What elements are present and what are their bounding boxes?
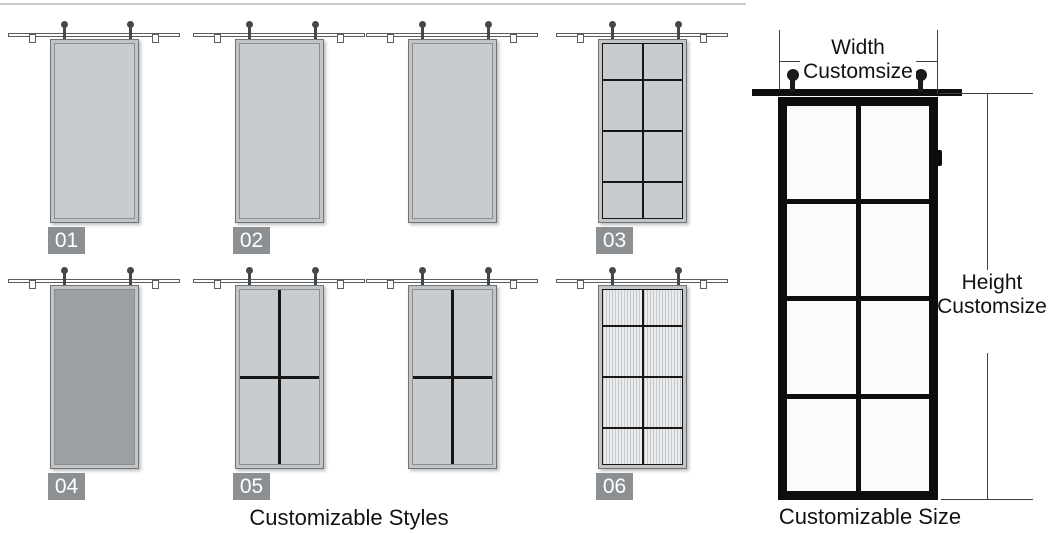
- glass-pane: [603, 327, 642, 376]
- glass-pane: [240, 379, 278, 465]
- glass-pane: [454, 290, 492, 376]
- sliding-rail: [193, 279, 365, 283]
- rail-end-cap: [700, 280, 707, 289]
- height-label-line1: Height: [928, 271, 1056, 295]
- sliding-rail: [193, 33, 365, 37]
- rail-end-cap: [387, 280, 394, 289]
- glass-pane: [454, 379, 492, 465]
- size-demo-rail: [752, 89, 962, 96]
- roller-hanger-icon: [915, 69, 927, 81]
- door-hanger-icon: [248, 271, 251, 286]
- door-style-unit-02b: [366, 30, 538, 262]
- sliding-rail: [556, 33, 728, 37]
- door-panel-04: [50, 285, 139, 469]
- sliding-rail: [556, 279, 728, 283]
- rail-end-cap: [214, 280, 221, 289]
- glass-pane: [413, 379, 451, 465]
- glass-pane: [787, 399, 856, 492]
- width-extension-line-right: [937, 30, 938, 94]
- styles-caption: Customizable Styles: [238, 505, 460, 531]
- door-face: [412, 289, 493, 465]
- height-dimension-line-lower: [987, 353, 988, 500]
- door-face: [602, 289, 683, 465]
- door-style-unit-05: 05: [193, 276, 365, 508]
- glass-pane: [603, 290, 642, 325]
- glass-pane: [644, 81, 683, 130]
- rail-end-cap: [700, 34, 707, 43]
- glass-pane: [603, 81, 642, 130]
- door-style-unit-01: 01: [8, 30, 180, 262]
- glass-pane: [787, 204, 856, 297]
- door-hanger-icon: [314, 271, 317, 286]
- sliding-rail: [8, 33, 180, 37]
- width-dimension-label: Width Customsize: [800, 36, 916, 84]
- door-hanger-icon: [677, 25, 680, 40]
- rail-end-cap: [577, 34, 584, 43]
- door-hanger-icon: [421, 271, 424, 286]
- door-hanger-icon: [63, 271, 66, 286]
- style-number-badge: 02: [233, 227, 270, 254]
- height-dimension-line-upper: [987, 94, 988, 270]
- door-panel-05: [235, 285, 324, 469]
- glass-pane: [861, 399, 930, 492]
- glass-pane: [603, 378, 642, 427]
- glass-pane: [281, 379, 319, 465]
- door-style-unit-05b: [366, 276, 538, 508]
- door-panel-06: [598, 285, 687, 469]
- door-hanger-icon: [487, 25, 490, 40]
- style-number-badge: 01: [48, 227, 85, 254]
- rail-end-cap: [152, 34, 159, 43]
- glass-pane: [644, 183, 683, 218]
- background-wall-line: [0, 3, 746, 5]
- glass-pane: [861, 301, 930, 394]
- width-label-line2: Customsize: [800, 60, 916, 84]
- glass-pane: [644, 290, 683, 325]
- door-panel-02: [235, 39, 324, 223]
- door-face: [54, 289, 135, 465]
- glass-pane: [603, 183, 642, 218]
- size-caption: Customizable Size: [765, 504, 975, 530]
- rail-end-cap: [577, 280, 584, 289]
- door-hanger-icon: [248, 25, 251, 40]
- height-dimension-label: Height Customsize: [928, 271, 1056, 319]
- door-panel-plain: [408, 39, 497, 223]
- door-hanger-icon: [63, 25, 66, 40]
- door-hanger-icon: [611, 25, 614, 40]
- door-style-unit-04: 04: [8, 276, 180, 508]
- sliding-rail: [366, 33, 538, 37]
- glass-pane: [644, 378, 683, 427]
- glass-pane: [787, 301, 856, 394]
- door-face: [239, 43, 320, 219]
- width-label-line1: Width: [800, 36, 916, 60]
- height-label-line2: Customsize: [928, 295, 1056, 319]
- door-style-unit-06: 06: [556, 276, 728, 508]
- rail-end-cap: [337, 34, 344, 43]
- barn-door-customization-infographic: 01 02 03: [0, 0, 1060, 533]
- door-face: [412, 43, 493, 219]
- glass-pane: [413, 290, 451, 376]
- style-number-badge: 05: [233, 473, 270, 500]
- glass-pane: [644, 327, 683, 376]
- rail-end-cap: [29, 280, 36, 289]
- door-panel-03: [598, 39, 687, 223]
- glass-pane: [787, 106, 856, 199]
- rail-end-cap: [510, 34, 517, 43]
- size-demo-door-face: [787, 106, 929, 491]
- door-hanger-icon: [487, 271, 490, 286]
- sliding-rail: [8, 279, 180, 283]
- glass-pane: [861, 204, 930, 297]
- size-demo-door: [778, 97, 938, 500]
- glass-pane: [644, 132, 683, 181]
- door-hanger-icon: [611, 271, 614, 286]
- style-number-badge: 04: [48, 473, 85, 500]
- door-panel-cross: [408, 285, 497, 469]
- door-style-unit-03: 03: [556, 30, 728, 262]
- door-face: [602, 43, 683, 219]
- sliding-rail: [366, 279, 538, 283]
- rail-end-cap: [337, 280, 344, 289]
- style-number-badge: 06: [596, 473, 633, 500]
- rail-end-cap: [29, 34, 36, 43]
- rail-end-cap: [510, 280, 517, 289]
- glass-pane: [603, 44, 642, 79]
- door-handle: [936, 150, 942, 166]
- glass-pane: [240, 290, 278, 376]
- door-panel-01: [50, 39, 139, 223]
- rail-end-cap: [387, 34, 394, 43]
- door-hanger-icon: [129, 25, 132, 40]
- glass-pane: [281, 290, 319, 376]
- glass-pane: [603, 132, 642, 181]
- rail-end-cap: [214, 34, 221, 43]
- style-number-badge: 03: [596, 227, 633, 254]
- width-extension-line-left: [779, 30, 780, 90]
- door-style-unit-02: 02: [193, 30, 365, 262]
- door-hanger-icon: [677, 271, 680, 286]
- glass-pane: [644, 44, 683, 79]
- door-face: [239, 289, 320, 465]
- rail-end-cap: [152, 280, 159, 289]
- glass-pane: [861, 106, 930, 199]
- glass-pane: [644, 429, 683, 464]
- door-hanger-icon: [421, 25, 424, 40]
- glass-pane: [603, 429, 642, 464]
- door-hanger-icon: [129, 271, 132, 286]
- door-face: [54, 43, 135, 219]
- door-hanger-icon: [314, 25, 317, 40]
- roller-hanger-icon: [787, 69, 799, 81]
